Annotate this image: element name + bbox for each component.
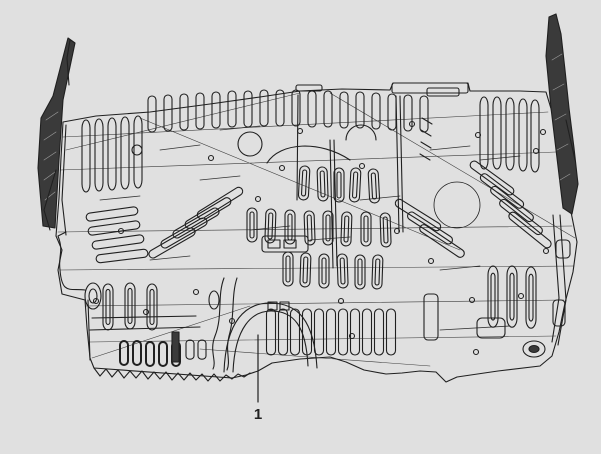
callout-label[interactable]: 1 [254, 406, 262, 423]
parts-diagram-page: 1 [0, 0, 601, 454]
parts-diagram-illustration: 1 [0, 0, 601, 454]
